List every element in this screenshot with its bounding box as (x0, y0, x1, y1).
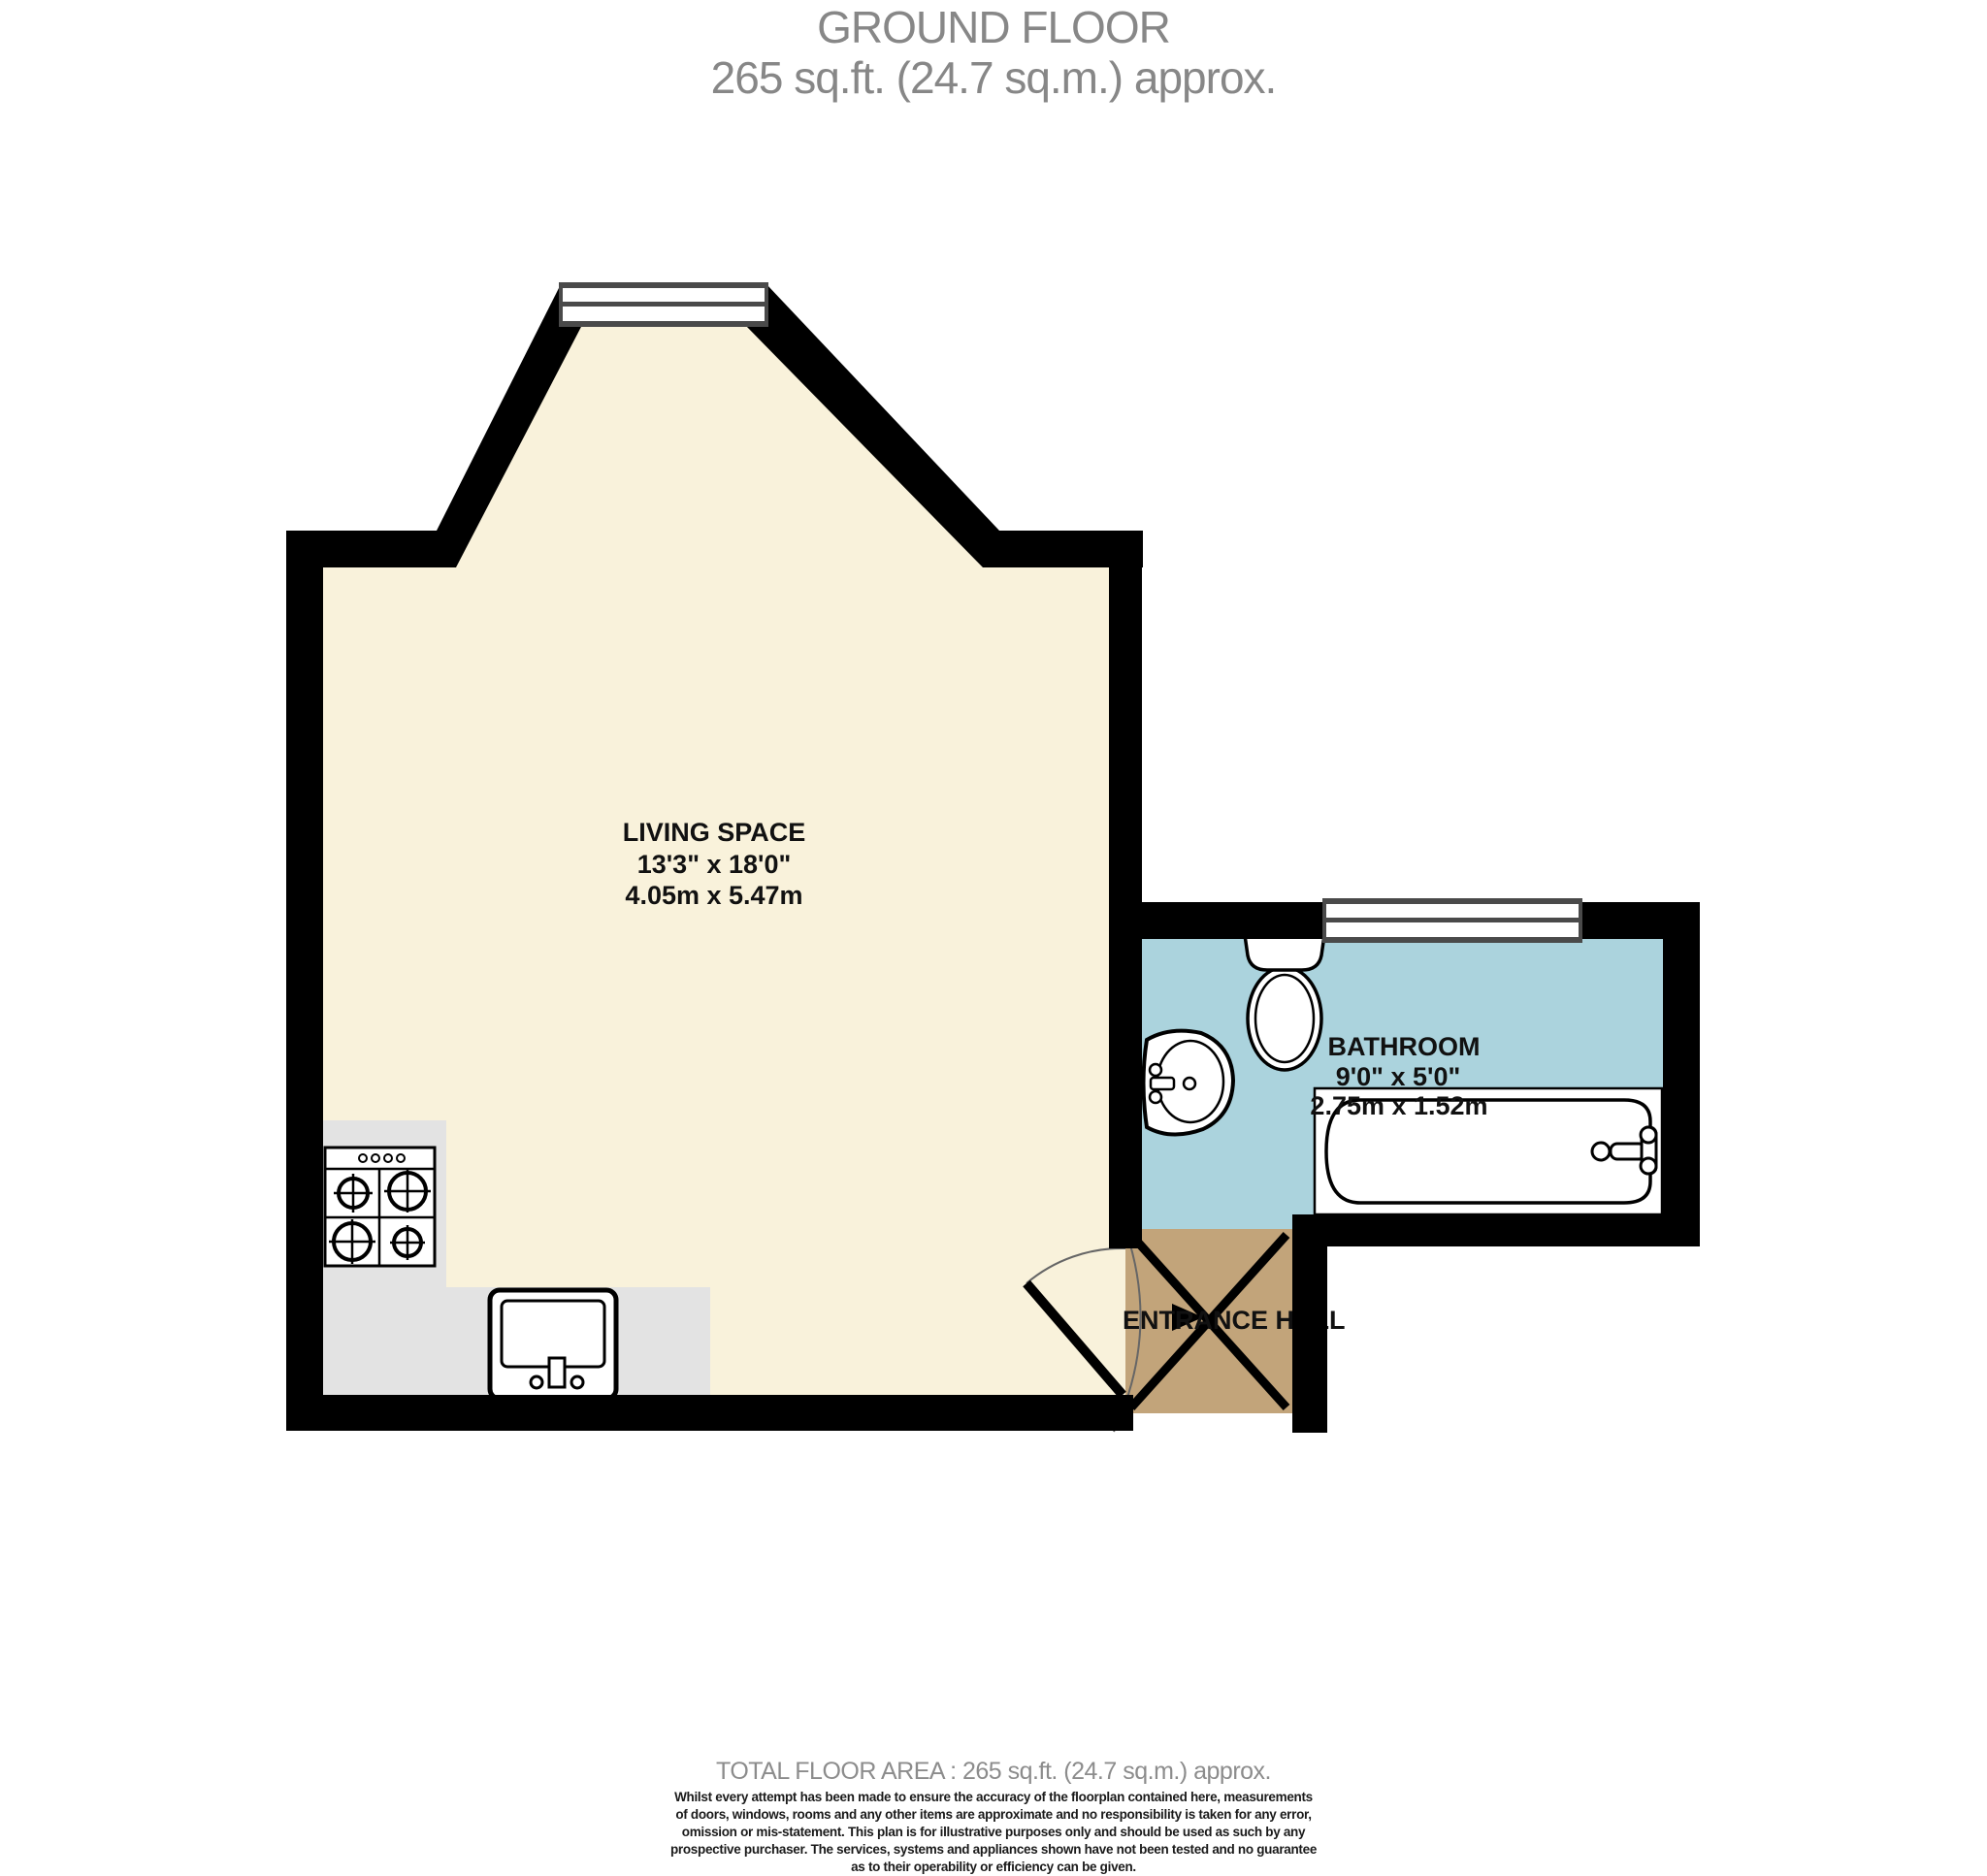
bay-window-icon (559, 282, 768, 327)
disclaimer-line: as to their operability or efficiency ca… (0, 1859, 1987, 1876)
living-space-dim-imperial: 13'3" x 18'0" (637, 850, 792, 879)
disclaimer-line: prospective purchaser. The services, sys… (0, 1841, 1987, 1859)
disclaimer: Whilst every attempt has been made to en… (0, 1789, 1987, 1876)
floor-plan: LIVING SPACE 13'3" x 18'0" 4.05m x 5.47m… (0, 0, 1987, 1876)
total-floor-area: TOTAL FLOOR AREA : 265 sq.ft. (24.7 sq.m… (0, 1758, 1987, 1786)
living-space-dim-metric: 4.05m x 5.47m (625, 881, 802, 910)
stove-icon (325, 1148, 435, 1266)
bathroom-dim-imperial: 9'0" x 5'0" (1336, 1062, 1461, 1091)
disclaimer-line: of doors, windows, rooms and any other i… (0, 1806, 1987, 1824)
floorplan-page: GROUND FLOOR 265 sq.ft. (24.7 sq.m.) app… (0, 0, 1987, 1876)
bathroom-label: BATHROOM (1328, 1032, 1481, 1061)
bathroom-sink-icon (1144, 1031, 1234, 1135)
living-space-label: LIVING SPACE (623, 818, 806, 847)
bathroom-window-icon (1322, 898, 1582, 943)
disclaimer-line: Whilst every attempt has been made to en… (0, 1789, 1987, 1806)
toilet-icon (1245, 935, 1324, 1070)
disclaimer-line: omission or mis-statement. This plan is … (0, 1824, 1987, 1841)
bathroom-dim-metric: 2.75m x 1.52m (1310, 1091, 1487, 1120)
kitchen-sink-icon (490, 1290, 616, 1399)
